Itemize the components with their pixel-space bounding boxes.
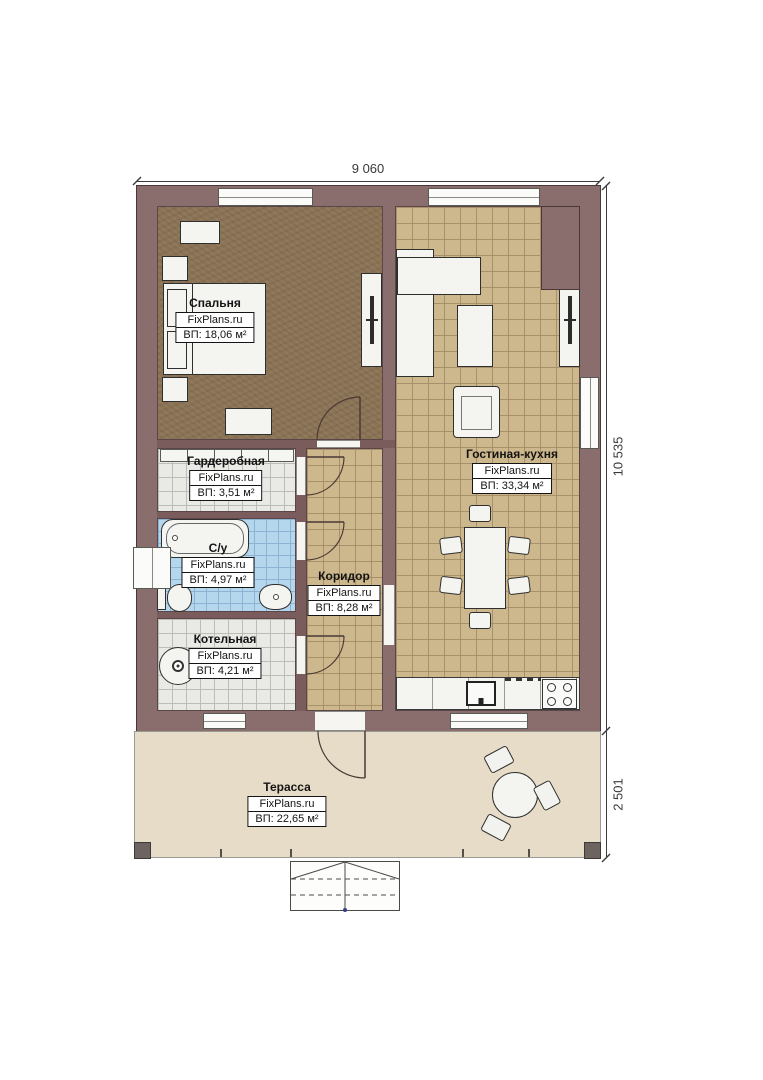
brand-label: FixPlans.ru xyxy=(182,558,253,573)
faucet-icon xyxy=(479,698,484,706)
room-name: Спальня xyxy=(175,296,254,310)
terrace-table xyxy=(492,772,538,818)
room-name: Котельная xyxy=(188,632,261,646)
window-right-living xyxy=(580,377,599,449)
room-label-bathroom: С/у FixPlans.ru ВП: 4,97 м² xyxy=(181,541,254,588)
wall-corridor-living xyxy=(383,645,395,711)
terrace-post-left xyxy=(134,842,151,859)
room-label-boiler: Котельная FixPlans.ru ВП: 4,21 м² xyxy=(188,632,261,679)
nightstand-bottom xyxy=(162,377,188,402)
room-name: С/у xyxy=(181,541,254,555)
burner-icon xyxy=(547,697,556,706)
wall-bedroom-bottom xyxy=(157,440,317,448)
armchair xyxy=(453,386,500,438)
room-label-bedroom: Спальня FixPlans.ru ВП: 18,06 м² xyxy=(175,296,254,343)
coffee-table xyxy=(457,305,493,367)
room-card: FixPlans.ru ВП: 33,34 м² xyxy=(472,463,551,494)
window-bottom-boiler xyxy=(203,713,246,729)
terrace-post-tick xyxy=(220,849,222,857)
dining-chair xyxy=(439,576,463,596)
bathtub-drain xyxy=(172,535,178,541)
area-label: ВП: 4,21 м² xyxy=(189,664,260,678)
burner-icon xyxy=(547,683,556,692)
room-card: FixPlans.ru ВП: 18,06 м² xyxy=(175,312,254,343)
washbasin-drain xyxy=(273,594,279,600)
area-label: ВП: 22,65 м² xyxy=(248,812,325,826)
brand-label: FixPlans.ru xyxy=(473,464,550,479)
floor-plan-canvas: 9 060 10 535 2 501 xyxy=(0,0,763,1080)
brand-label: FixPlans.ru xyxy=(248,797,325,812)
room-label-living-kitchen: Гостиная-кухня FixPlans.ru ВП: 33,34 м² xyxy=(466,447,558,494)
brand-label: FixPlans.ru xyxy=(189,649,260,664)
window-top-living xyxy=(428,188,540,206)
dining-chair xyxy=(507,536,531,556)
sofa-horizontal xyxy=(397,257,481,295)
room-card: FixPlans.ru ВП: 4,97 м² xyxy=(181,557,254,588)
wall-pier-top-right xyxy=(541,206,580,290)
dimension-label-right-terrace: 2 501 xyxy=(611,755,626,835)
room-name: Терасса xyxy=(247,780,326,794)
area-label: ВП: 4,97 м² xyxy=(182,573,253,587)
boiler-dot xyxy=(177,665,180,668)
door-opening-bedroom xyxy=(317,440,360,448)
room-card: FixPlans.ru ВП: 22,65 м² xyxy=(247,796,326,827)
dining-chair xyxy=(469,505,491,522)
wall-wardrobe-bathroom xyxy=(157,512,296,518)
door-opening-boiler xyxy=(296,636,306,674)
terrace-post-tick xyxy=(462,849,464,857)
area-label: ВП: 18,06 м² xyxy=(176,328,253,342)
dining-chair xyxy=(469,612,491,629)
dimension-line-right-terrace xyxy=(606,731,607,858)
steps xyxy=(290,861,400,911)
tv-stand xyxy=(564,319,576,321)
tv-unit-bedroom xyxy=(361,273,382,367)
bedroom-cabinet xyxy=(225,408,272,435)
room-name: Гардеробная xyxy=(187,454,265,468)
dimension-line-right-main xyxy=(606,186,607,731)
dining-table xyxy=(464,527,506,609)
dimension-line-top xyxy=(137,181,600,182)
toilet-tank xyxy=(157,586,166,610)
entrance-opening xyxy=(315,711,365,731)
wall-bedroom-living xyxy=(383,206,395,448)
area-label: ВП: 3,51 м² xyxy=(190,486,261,500)
window-bottom-kitchen xyxy=(450,713,528,729)
room-label-wardrobe: Гардеробная FixPlans.ru ВП: 3,51 м² xyxy=(187,454,265,501)
wall-bedroom-bottom xyxy=(360,440,395,448)
dining-chair xyxy=(507,576,531,596)
window-left-bathroom xyxy=(133,547,171,589)
dimension-label-right-main: 10 535 xyxy=(611,417,626,497)
brand-label: FixPlans.ru xyxy=(176,313,253,328)
room-card: FixPlans.ru ВП: 3,51 м² xyxy=(189,470,262,501)
nightstand-top xyxy=(162,256,188,281)
room-name: Гостиная-кухня xyxy=(466,447,558,461)
tv-stand xyxy=(366,319,378,321)
wall-corridor-living xyxy=(383,448,395,585)
door-opening-bathroom xyxy=(296,522,306,560)
room-card: FixPlans.ru ВП: 4,21 м² xyxy=(188,648,261,679)
terrace-post-tick xyxy=(290,849,292,857)
terrace-post-tick xyxy=(528,849,530,857)
dresser xyxy=(180,221,220,244)
door-opening-wardrobe xyxy=(296,457,306,495)
washbasin xyxy=(259,584,292,610)
area-label: ВП: 33,34 м² xyxy=(473,479,550,493)
burner-icon xyxy=(563,697,572,706)
kitchen-sink xyxy=(466,681,496,706)
brand-label: FixPlans.ru xyxy=(308,586,379,601)
armchair-seat xyxy=(461,396,492,430)
stove xyxy=(542,679,577,709)
dimension-label-top: 9 060 xyxy=(352,161,385,176)
dining-chair xyxy=(439,536,463,556)
brand-label: FixPlans.ru xyxy=(190,471,261,486)
dishwasher-dashes xyxy=(505,678,541,681)
opening-corridor-living xyxy=(383,585,395,645)
room-label-terrace: Терасса FixPlans.ru ВП: 22,65 м² xyxy=(247,780,326,827)
room-name: Коридор xyxy=(307,569,380,583)
room-label-corridor: Коридор FixPlans.ru ВП: 8,28 м² xyxy=(307,569,380,616)
burner-icon xyxy=(563,683,572,692)
window-top-bedroom xyxy=(218,188,313,206)
room-card: FixPlans.ru ВП: 8,28 м² xyxy=(307,585,380,616)
terrace-post-right xyxy=(584,842,601,859)
wall-bathroom-boiler xyxy=(157,612,296,618)
area-label: ВП: 8,28 м² xyxy=(308,601,379,615)
